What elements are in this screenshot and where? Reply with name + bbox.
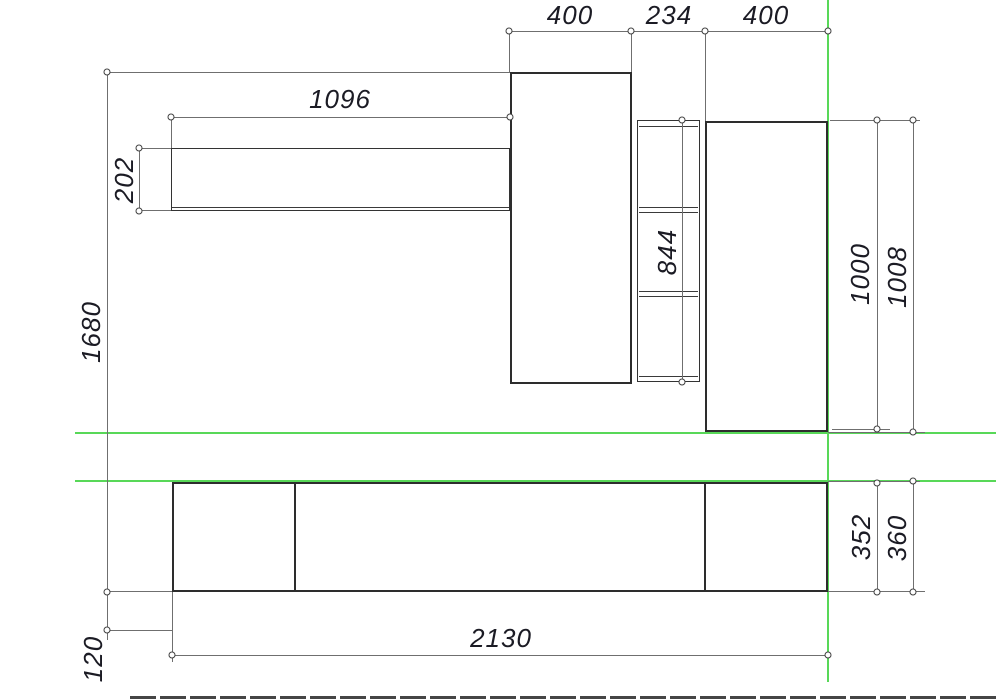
shelf-column-shelf-line bbox=[639, 291, 698, 292]
dimension-point bbox=[910, 478, 917, 485]
dim-label-shelf-column-width: 234 bbox=[646, 2, 692, 28]
extension-line bbox=[171, 117, 172, 148]
dim-label-shelf-column-height: 844 bbox=[654, 229, 680, 275]
base-cabinet-outline bbox=[172, 482, 828, 592]
dimension-point bbox=[136, 208, 143, 215]
base-cabinet-divider-left bbox=[294, 482, 296, 592]
dim-label-base-overall: 360 bbox=[884, 515, 910, 561]
dimension-point bbox=[104, 69, 111, 76]
dim-label-cabinet-left-width: 400 bbox=[547, 2, 593, 28]
dimension-point bbox=[679, 379, 686, 386]
dimension-point bbox=[507, 114, 514, 121]
dimension-line-right-cabinet-height bbox=[877, 120, 878, 429]
extension-line bbox=[631, 31, 632, 72]
extension-line bbox=[107, 630, 172, 631]
dim-label-base-height: 352 bbox=[848, 514, 874, 560]
dimension-point bbox=[169, 652, 176, 659]
shelf-column-shelf-line bbox=[639, 207, 698, 208]
dimension-line-top bbox=[509, 31, 828, 32]
shelf-column-shelf-line bbox=[639, 296, 698, 297]
dimension-line-base-height bbox=[877, 483, 878, 592]
extension-line bbox=[139, 210, 171, 211]
dim-label-right-cabinet-height: 1000 bbox=[847, 243, 873, 305]
dim-label-right-cabinet-overall: 1008 bbox=[884, 246, 910, 308]
dim-label-base-clearance: 120 bbox=[80, 636, 106, 682]
extension-line bbox=[509, 31, 510, 72]
dimension-point bbox=[874, 589, 881, 596]
extension-line bbox=[107, 591, 172, 592]
dimension-line-base-overall bbox=[913, 481, 914, 592]
extension-line bbox=[139, 148, 171, 149]
shelf-column-shelf-line bbox=[639, 212, 698, 213]
dimension-point bbox=[874, 480, 881, 487]
dimension-point bbox=[825, 28, 832, 35]
extension-line bbox=[107, 72, 510, 73]
dim-label-base-length: 2130 bbox=[470, 625, 532, 651]
wall-shelf-inner-line bbox=[172, 207, 509, 208]
dimension-line-shelf-column-height bbox=[682, 120, 683, 382]
dimension-line-wall-shelf-length bbox=[171, 117, 510, 118]
dimension-point bbox=[104, 627, 111, 634]
tall-cabinet-outline bbox=[510, 72, 632, 384]
dimension-line-base-length bbox=[172, 655, 828, 656]
dim-label-cabinet-right-width: 400 bbox=[743, 2, 789, 28]
dimension-point bbox=[136, 145, 143, 152]
dimension-point bbox=[874, 426, 881, 433]
dimension-point bbox=[874, 117, 881, 124]
technical-drawing: 400 234 400 1096 202 1680 844 1000 1008 … bbox=[0, 0, 1000, 700]
dim-label-wall-shelf-length: 1096 bbox=[309, 86, 371, 112]
dimension-point bbox=[825, 652, 832, 659]
shelf-column-top-board-line bbox=[639, 126, 698, 127]
dimension-point bbox=[168, 114, 175, 121]
dimension-line-right-cabinet-overall bbox=[913, 120, 914, 432]
dimension-line-overall-height bbox=[107, 72, 108, 592]
base-cabinet-divider-right bbox=[704, 482, 706, 592]
dimension-point bbox=[702, 28, 709, 35]
extension-line bbox=[832, 429, 890, 430]
dimension-line-wall-shelf-height bbox=[139, 148, 140, 211]
dim-label-wall-shelf-height: 202 bbox=[111, 157, 137, 203]
drawing-border-bottom bbox=[130, 696, 998, 699]
dimension-point bbox=[506, 28, 513, 35]
dimension-point bbox=[910, 117, 917, 124]
extension-line bbox=[705, 31, 706, 121]
dimension-point bbox=[910, 589, 917, 596]
wall-shelf-outline bbox=[171, 148, 510, 211]
dimension-point bbox=[679, 117, 686, 124]
dim-label-overall-height: 1680 bbox=[78, 301, 104, 363]
dimension-point bbox=[910, 429, 917, 436]
right-cabinet-outline bbox=[705, 121, 828, 432]
shelf-column-bottom-board-line bbox=[639, 376, 698, 377]
dimension-point bbox=[104, 589, 111, 596]
dimension-point bbox=[628, 28, 635, 35]
